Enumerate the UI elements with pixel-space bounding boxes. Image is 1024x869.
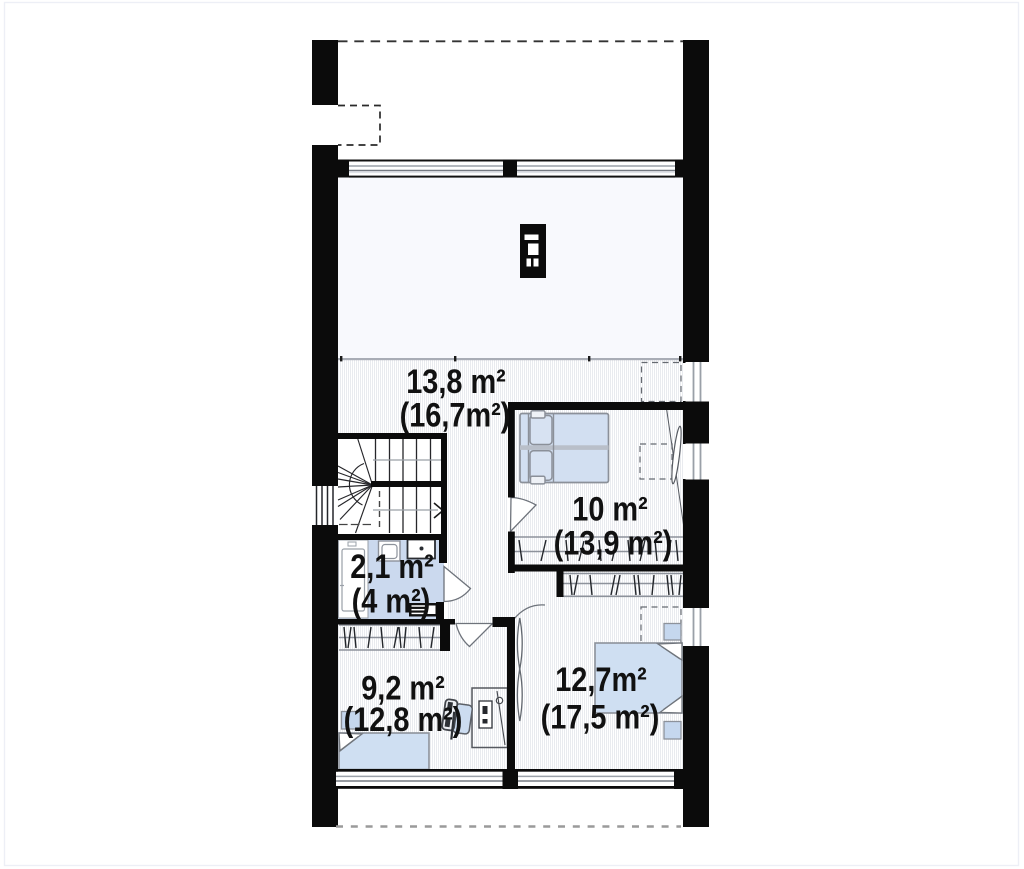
svg-text:(13,9 m²): (13,9 m²)	[554, 523, 673, 562]
svg-text:(17,5 m²): (17,5 m²)	[541, 697, 660, 736]
svg-text:12,7m²: 12,7m²	[555, 660, 647, 699]
svg-text:(16,7m²): (16,7m²)	[400, 395, 511, 434]
svg-text:2,1 m²: 2,1 m²	[350, 547, 434, 586]
svg-text:10 m²: 10 m²	[572, 489, 647, 528]
svg-text:(4 m²): (4 m²)	[352, 581, 431, 620]
svg-text:(12,8 m²): (12,8 m²)	[344, 700, 463, 739]
